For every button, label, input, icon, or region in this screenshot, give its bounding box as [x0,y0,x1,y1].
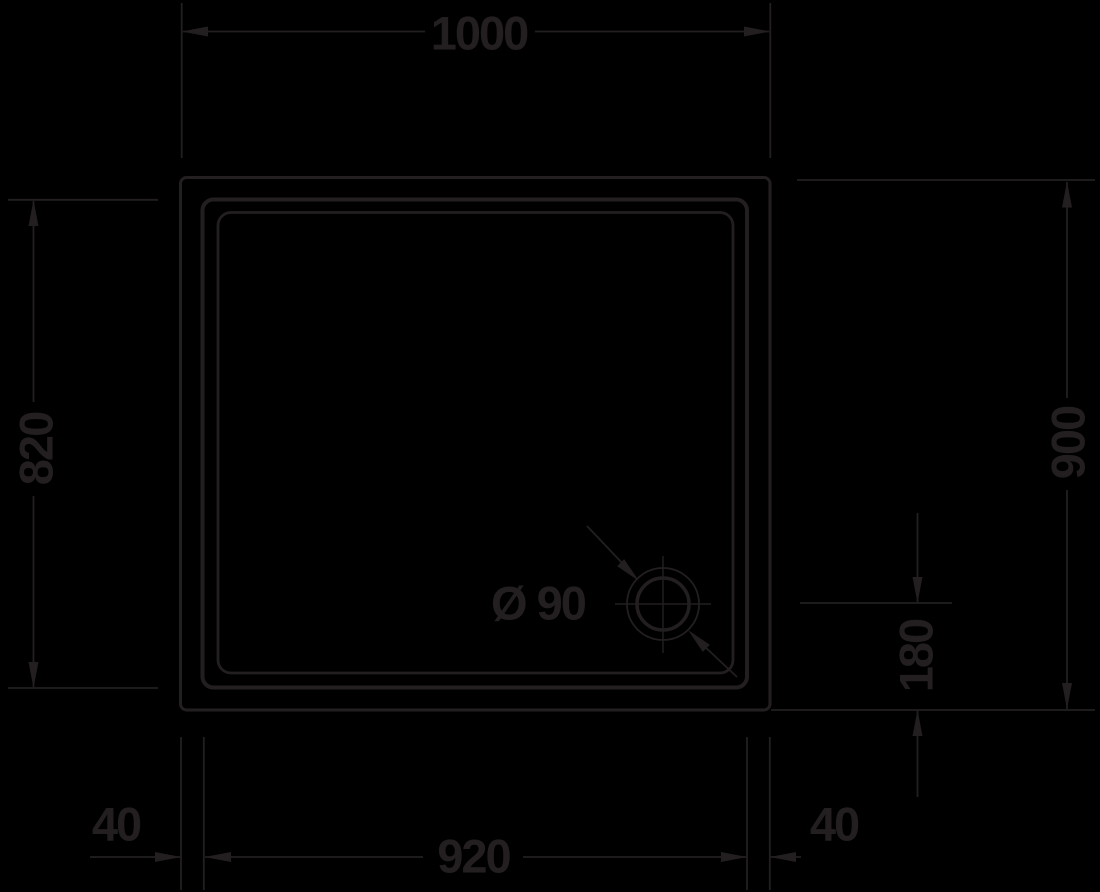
drain-leader-upper [587,526,624,565]
tray-rim-edge [203,200,748,688]
arrowhead-bottom-far-left [155,852,181,862]
dimension-label-bottom-left-margin: 40 [92,798,141,851]
dimension-label-outer-width: 1000 [431,7,528,60]
arrowhead-bottom-inner-left [205,852,232,862]
arrowhead-left-top [29,200,39,226]
arrowhead-right-top [1062,182,1072,208]
arrowhead-bottom-far-right [770,852,796,862]
tray-outline [181,178,771,711]
technical-drawing: 1000 820 900 18 [0,0,1100,892]
dimension-top-outer-width: 1000 [182,3,771,158]
tray-outer-edge [181,178,771,711]
dimension-bottom-chain: 40 920 40 [90,737,859,890]
arrowhead-right-bottom [1062,683,1072,709]
arrowhead-top-right [744,27,770,37]
dimension-label-drain-offset: 180 [890,619,943,692]
arrowhead-drain-offset-top [913,577,923,603]
arrowhead-bottom-inner-right [721,852,747,862]
dimension-label-bottom-right-margin: 40 [810,798,859,851]
arrowhead-drain-offset-bottom [913,710,923,736]
drain [587,526,737,677]
dimension-left-inner-height: 820 [8,200,158,688]
dimension-label-outer-height: 900 [1042,406,1095,479]
arrowhead-left-bottom [29,662,39,688]
arrowhead-top-left [182,27,208,37]
dimension-label-drain-diameter: Ø 90 [491,577,586,630]
dimension-right-drain-offset: 180 [800,513,952,797]
dimension-label-inner-width: 920 [437,830,510,883]
dimension-label-inner-height: 820 [10,412,63,485]
drawing-canvas: 1000 820 900 18 [0,0,1100,892]
